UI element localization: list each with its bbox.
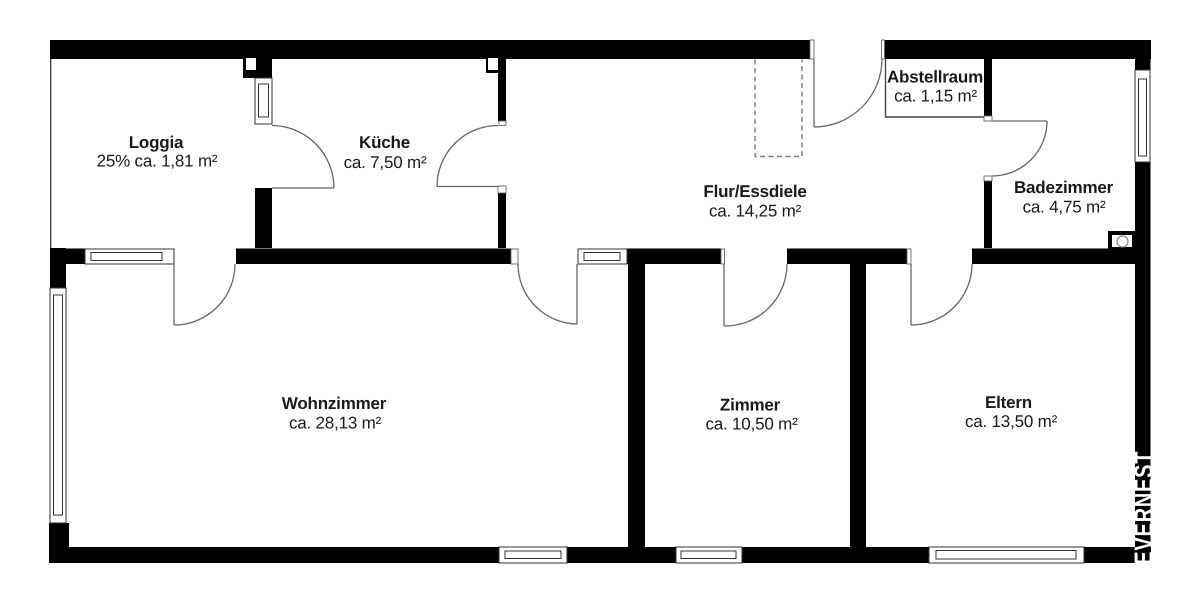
svg-text:Abstellraum: Abstellraum: [887, 68, 983, 87]
svg-text:ca. 4,75 m²: ca. 4,75 m²: [1023, 197, 1106, 216]
svg-text:Küche: Küche: [359, 133, 410, 152]
svg-text:Wohnzimmer: Wohnzimmer: [282, 394, 387, 413]
svg-text:ca. 10,50 m²: ca. 10,50 m²: [705, 414, 798, 433]
svg-text:ca. 13,50 m²: ca. 13,50 m²: [965, 412, 1058, 431]
svg-text:Eltern: Eltern: [985, 393, 1032, 412]
svg-text:EVERNEST: EVERNEST: [1129, 451, 1159, 565]
svg-text:ca. 1,15 m²: ca. 1,15 m²: [894, 87, 977, 106]
svg-text:ca. 7,50 m²: ca. 7,50 m²: [344, 153, 427, 172]
svg-text:ca. 28,13 m²: ca. 28,13 m²: [289, 414, 382, 433]
svg-text:Flur/Essdiele: Flur/Essdiele: [703, 182, 806, 201]
svg-text:Badezimmer: Badezimmer: [1014, 178, 1114, 197]
svg-text:Loggia: Loggia: [129, 133, 184, 152]
svg-text:Zimmer: Zimmer: [720, 396, 781, 415]
svg-text:ca. 14,25 m²: ca. 14,25 m²: [709, 201, 802, 220]
svg-text:25% ca. 1,81 m²: 25% ca. 1,81 m²: [97, 152, 218, 171]
